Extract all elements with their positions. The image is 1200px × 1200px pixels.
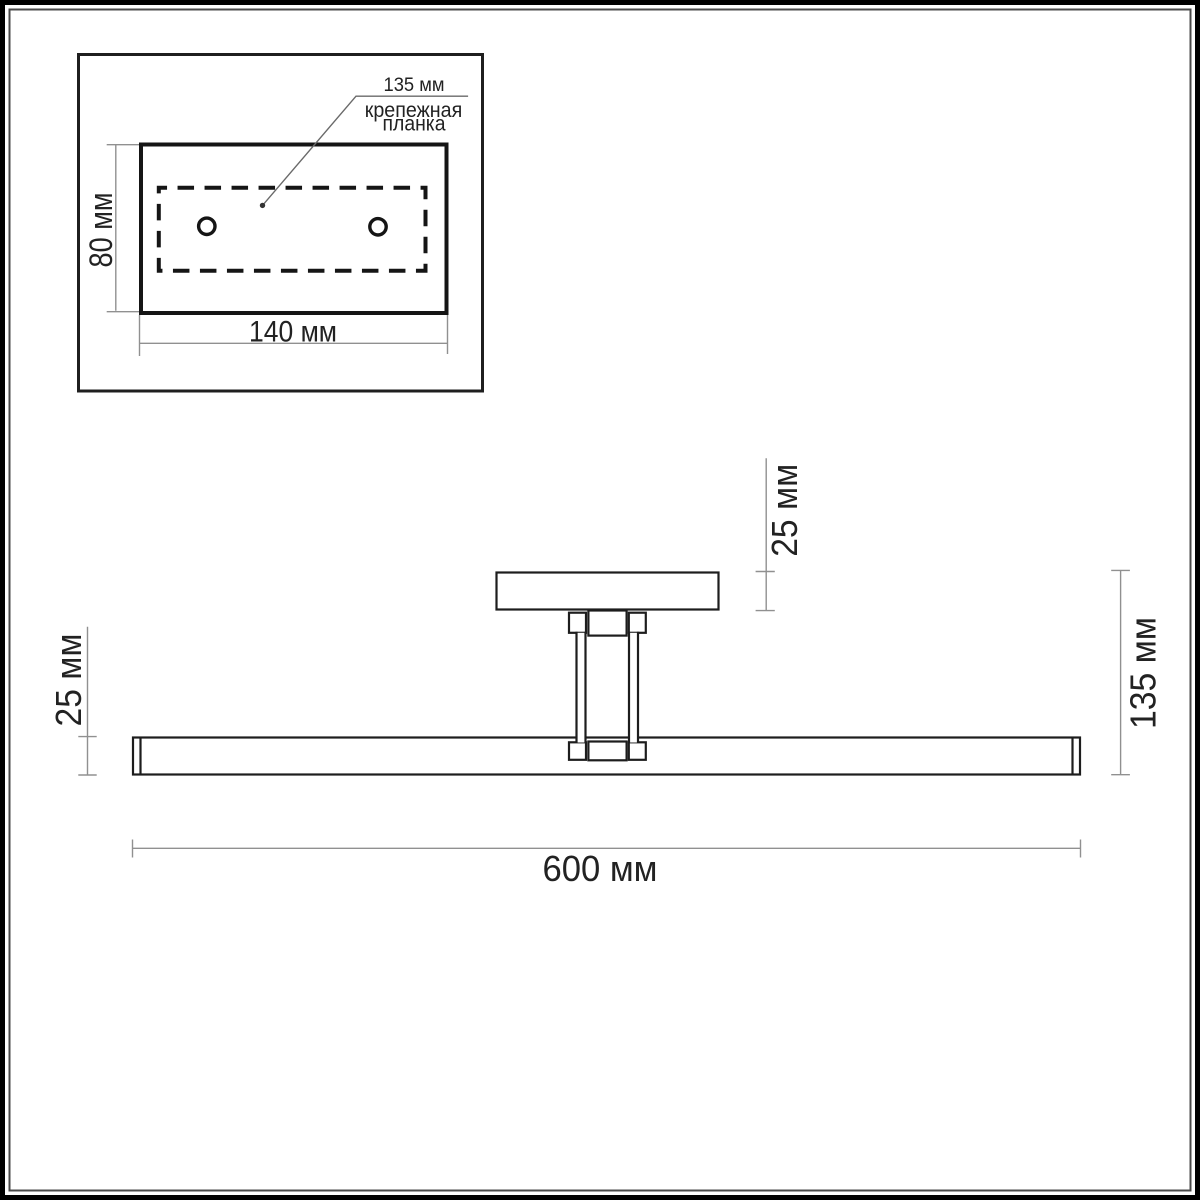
svg-text:135 мм: 135 мм [1123, 617, 1164, 729]
svg-text:80 мм: 80 мм [83, 193, 119, 268]
svg-text:600 мм: 600 мм [543, 848, 658, 889]
svg-text:135 мм: 135 мм [384, 74, 445, 96]
svg-text:25 мм: 25 мм [764, 464, 805, 557]
svg-text:планка: планка [383, 112, 446, 135]
svg-text:25 мм: 25 мм [48, 634, 89, 727]
svg-text:140 мм: 140 мм [249, 315, 337, 348]
